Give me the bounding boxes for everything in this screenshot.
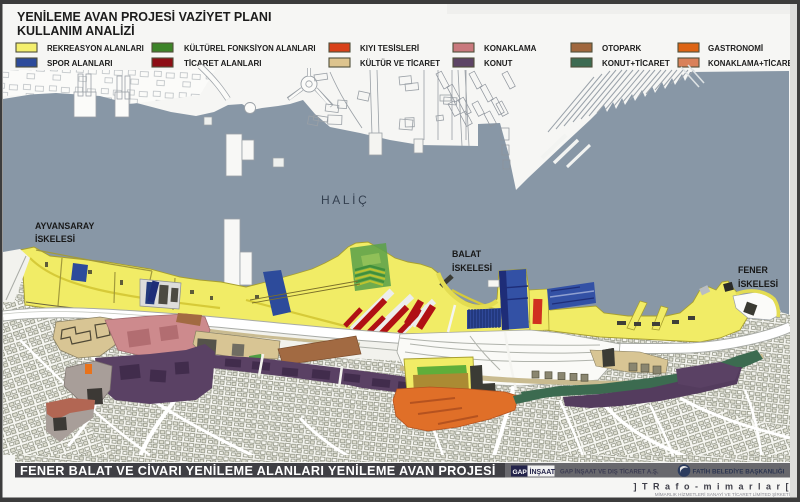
svg-text:GAP İNŞAAT VE DIŞ TİCARET A.Ş.: GAP İNŞAAT VE DIŞ TİCARET A.Ş. (560, 468, 659, 475)
svg-text:GAP: GAP (513, 469, 528, 476)
svg-text:İNŞAAT: İNŞAAT (530, 468, 556, 476)
svg-text:KONUT+TİCARET: KONUT+TİCARET (602, 59, 670, 68)
svg-text:BALAT: BALAT (452, 249, 482, 259)
svg-text:KÜLTÜR VE TİCARET: KÜLTÜR VE TİCARET (360, 59, 440, 68)
svg-text:SPOR ALANLARI: SPOR ALANLARI (47, 59, 112, 68)
svg-text:AYVANSARAY: AYVANSARAY (35, 221, 94, 231)
svg-text:İSKELESİ: İSKELESİ (452, 263, 492, 273)
svg-text:GASTRONOMİ: GASTRONOMİ (708, 44, 763, 53)
svg-text:KONAKLAMA: KONAKLAMA (484, 44, 537, 53)
svg-text:TİCARET ALANLARI: TİCARET ALANLARI (184, 59, 261, 68)
svg-text:YENİLEME AVAN PROJESİ VAZİYET: YENİLEME AVAN PROJESİ VAZİYET PLANI (17, 9, 271, 24)
svg-text:FATİH BELEDİYE BAŞKANLIĞI: FATİH BELEDİYE BAŞKANLIĞI (693, 466, 785, 475)
svg-text:KULLANIM ANALİZİ: KULLANIM ANALİZİ (17, 23, 135, 38)
svg-text:KÜLTÜREL FONKSİYON ALANLARI: KÜLTÜREL FONKSİYON ALANLARI (184, 44, 316, 53)
svg-text:HALİÇ: HALİÇ (321, 193, 369, 207)
svg-text:MİMARLIK HİZMETLERİ SANAYİ VE: MİMARLIK HİZMETLERİ SANAYİ VE TİCARET Lİ… (655, 491, 790, 497)
svg-text:FENER BALAT VE CİVARI YENİLEME: FENER BALAT VE CİVARI YENİLEME ALANLARI … (20, 463, 496, 478)
svg-text:REKREASYON ALANLARI: REKREASYON ALANLARI (47, 44, 144, 53)
svg-text:İSKELESİ: İSKELESİ (738, 279, 778, 289)
svg-text:] T R a f o - m i m a r l a r: ] T R a f o - m i m a r l a r [ (633, 482, 790, 492)
svg-text:FENER: FENER (738, 265, 768, 275)
svg-text:OTOPARK: OTOPARK (602, 44, 641, 53)
svg-text:KIYI TESİSLERİ: KIYI TESİSLERİ (360, 44, 419, 53)
svg-text:KONAKLAMA+TİCARET: KONAKLAMA+TİCARET (708, 59, 798, 68)
svg-text:İSKELESİ: İSKELESİ (35, 234, 75, 244)
svg-text:KONUT: KONUT (484, 59, 513, 68)
